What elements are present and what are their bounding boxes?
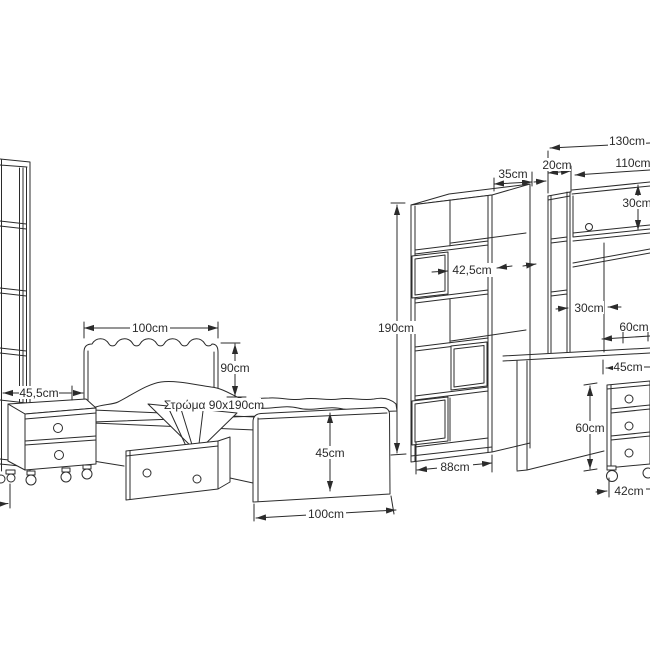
dim-label-pedestal-height: 60cm [575, 421, 604, 435]
dim-hutch-width: 110cm [575, 156, 650, 175]
drawing-canvas: 45,5cm 100cm 90cm Στρώμα 90x190cm [0, 0, 650, 650]
pedestal-knob-3 [625, 449, 633, 457]
dim-label-desk-total-width: 130cm [609, 134, 645, 148]
dim-label-cabinet-height: 30cm [622, 196, 650, 210]
pedestal-caster-mount [607, 466, 616, 470]
dim-label-footboard-height: 45cm [315, 446, 344, 460]
furniture-technical-drawing: 45,5cm 100cm 90cm Στρώμα 90x190cm [0, 0, 650, 650]
dim-label-desk-column-width: 20cm [542, 158, 571, 172]
dim-desk-column-width: 20cm [542, 158, 571, 192]
pedestal-drawers [607, 381, 650, 482]
dim-label-bookcase-width: 88cm [440, 460, 469, 474]
dim-label-pedestal-base: 42cm [614, 484, 643, 498]
nightstand-knob-top [54, 424, 63, 433]
bookcase-box-row4-right [451, 342, 487, 390]
dim-pedestal-width: 45cm [603, 360, 650, 374]
pedestal-caster-2 [643, 468, 650, 478]
dim-niche-width: 30cm [556, 301, 621, 315]
dim-label-bookcase-height: 190cm [378, 321, 414, 335]
pedestal-knob-2 [625, 422, 633, 430]
dim-left-shelf-width: 45,5cm [3, 386, 83, 400]
dim-label-niche-width: 30cm [574, 301, 603, 315]
left-shelf-foot-mount [6, 470, 15, 474]
dim-label-headboard-height: 90cm [220, 361, 249, 375]
nightstand-knob-bottom [55, 451, 64, 460]
left-shelf-caster-2 [0, 475, 5, 483]
hutch-side-column [548, 192, 570, 353]
nightstand-side [8, 404, 25, 470]
nightstand [8, 399, 96, 485]
bookcase-box-row2-left [412, 252, 448, 298]
dim-label-left-shelf-width: 45,5cm [19, 386, 58, 400]
dim-pedestal-base: 42cm [596, 478, 650, 498]
drawer-knob-right [193, 475, 201, 483]
hutch-cabinet-knob [586, 224, 593, 231]
dim-label-mattress: Στρώμα 90x190cm [164, 398, 264, 412]
dim-label-bed-length: 100cm [308, 507, 344, 521]
bookcase [411, 184, 530, 462]
dim-label-worktop: 60cm [619, 320, 648, 334]
bed-drawer-front [126, 441, 218, 500]
dim-headboard-height: 90cm [219, 343, 251, 397]
dim-label-bookcase-depth: 35cm [498, 167, 527, 181]
dim-pedestal-height: 60cm [574, 383, 606, 471]
dim-headboard-width: 100cm [84, 321, 218, 338]
pedestal-caster [607, 471, 618, 482]
dim-worktop: 60cm [602, 320, 650, 343]
dim-label-bookcase-inner-width: 42,5cm [452, 263, 491, 277]
bed-drawer-side [218, 437, 230, 489]
dim-cutoff-left [1, 484, 10, 508]
left-shelf-caster [7, 474, 15, 482]
hutch-shelves [573, 233, 650, 352]
dim-cabinet-height: 30cm [622, 185, 650, 230]
mattress-label: Στρώμα 90x190cm [164, 398, 264, 412]
dim-label-hutch-width: 110cm [615, 156, 650, 170]
drawer-knob-left [143, 469, 151, 477]
pedestal-knob-1 [625, 395, 633, 403]
bookcase-box-row5-left [412, 397, 448, 445]
dim-label-pedestal-width: 45cm [613, 360, 642, 374]
dim-label-headboard-width: 100cm [132, 321, 168, 335]
